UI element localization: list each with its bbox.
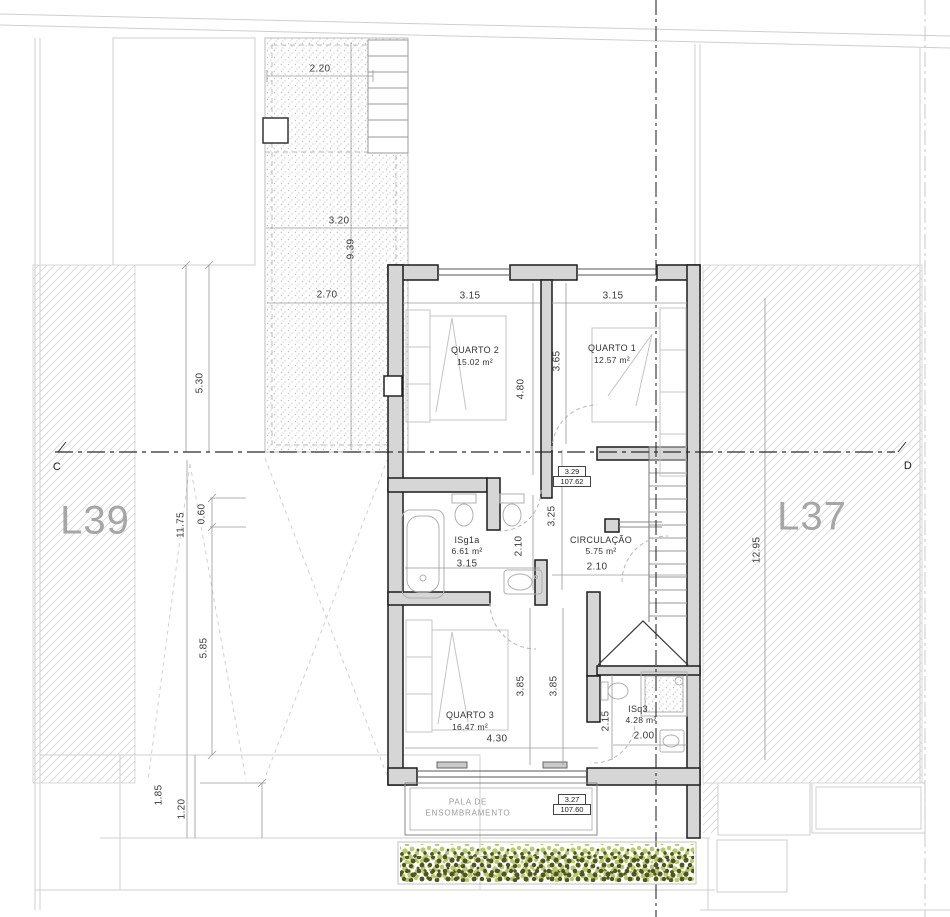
pala-label-line1: PALA DE	[449, 798, 487, 807]
plot-label-l37: L37	[777, 495, 847, 540]
staircase	[598, 447, 688, 665]
bidet	[500, 494, 524, 503]
dim-patio-height: 9.39	[346, 239, 357, 260]
room-area-quarto1: 12.57 m²	[594, 355, 630, 365]
window-vents	[437, 762, 567, 768]
vegetation	[398, 842, 696, 884]
pala-label-line2: ENSOMBRAMENTO	[426, 809, 511, 818]
right-plot-hatch	[703, 265, 922, 833]
toilet	[601, 682, 608, 700]
room-name-quarto1: QUARTO 1	[588, 343, 636, 353]
floor-plan-drawing: 2.20 3.20 9.39 2.70 5.30 11.75 0.60 5.85…	[0, 0, 950, 917]
level-value: 3.29	[558, 466, 586, 476]
dim-quarto1-height: 3.65	[552, 351, 563, 372]
dim-left-1-20: 1.20	[177, 799, 188, 820]
dim-circulacao-width: 2.10	[587, 562, 608, 573]
roof-ladder	[368, 40, 408, 153]
level-value: 3.27	[558, 794, 586, 804]
plot-label-l39: L39	[60, 499, 130, 544]
dim-left-5-30: 5.30	[195, 373, 206, 394]
dim-left-5-85: 5.85	[199, 638, 210, 659]
washbasin	[660, 730, 684, 752]
toilet	[452, 494, 476, 503]
dim-quarto3-height-b: 3.85	[549, 676, 560, 697]
room-name-quarto2: QUARTO 2	[451, 345, 499, 355]
left-wall-window-marker	[384, 376, 402, 396]
projection-lines	[148, 458, 388, 780]
room-name-circulacao: CIRCULAÇÃO	[570, 535, 632, 545]
dim-patio-low: 2.70	[317, 290, 338, 301]
room-name-isg1a: ISg1a	[454, 535, 479, 545]
room-area-isq3: 4.28 m²	[626, 715, 657, 725]
section-marker-c: C	[53, 461, 61, 473]
room-name-isq3: ISq3	[628, 704, 648, 714]
plan-linework	[0, 0, 950, 917]
dim-circulacao-height: 3.25	[547, 506, 558, 527]
dim-patio-top: 2.20	[310, 64, 331, 75]
dim-quarto2-height: 4.80	[516, 379, 527, 400]
patio-window-marker	[263, 118, 288, 143]
room-area-quarto2: 15.02 m²	[457, 357, 493, 367]
level-marker-lower: 3.27 107.60	[553, 794, 591, 815]
room-area-quarto3: 16.47 m²	[452, 722, 488, 732]
level-elevation: 107.62	[553, 476, 591, 487]
dim-isg1a-width: 3.15	[457, 559, 478, 570]
dim-quarto3-width: 4.30	[487, 734, 508, 745]
dim-right-12-95: 12.95	[752, 537, 763, 564]
dim-patio-mid: 3.20	[329, 216, 350, 227]
dim-quarto3-height-a: 3.85	[516, 676, 527, 697]
sliding-door-pocket	[605, 519, 619, 532]
dim-left-1-85: 1.85	[154, 785, 165, 806]
dim-isq3-height: 2.15	[601, 711, 612, 732]
room-area-isg1a: 6.61 m²	[452, 546, 483, 556]
dim-quarto1-width: 3.15	[603, 291, 624, 302]
dim-left-11-75: 11.75	[176, 512, 187, 538]
level-elevation: 107.60	[553, 804, 591, 815]
dim-left-0-60: 0.60	[197, 504, 208, 525]
dim-isq3-width: 2.00	[634, 731, 655, 742]
room-name-quarto3: QUARTO 3	[446, 710, 494, 720]
dim-isg1a-height: 2.10	[514, 536, 525, 557]
level-marker-upper: 3.29 107.62	[553, 466, 591, 487]
room-area-circulacao: 5.75 m²	[586, 546, 617, 556]
dim-quarto2-width: 3.15	[460, 291, 481, 302]
section-marker-d: D	[904, 460, 912, 472]
